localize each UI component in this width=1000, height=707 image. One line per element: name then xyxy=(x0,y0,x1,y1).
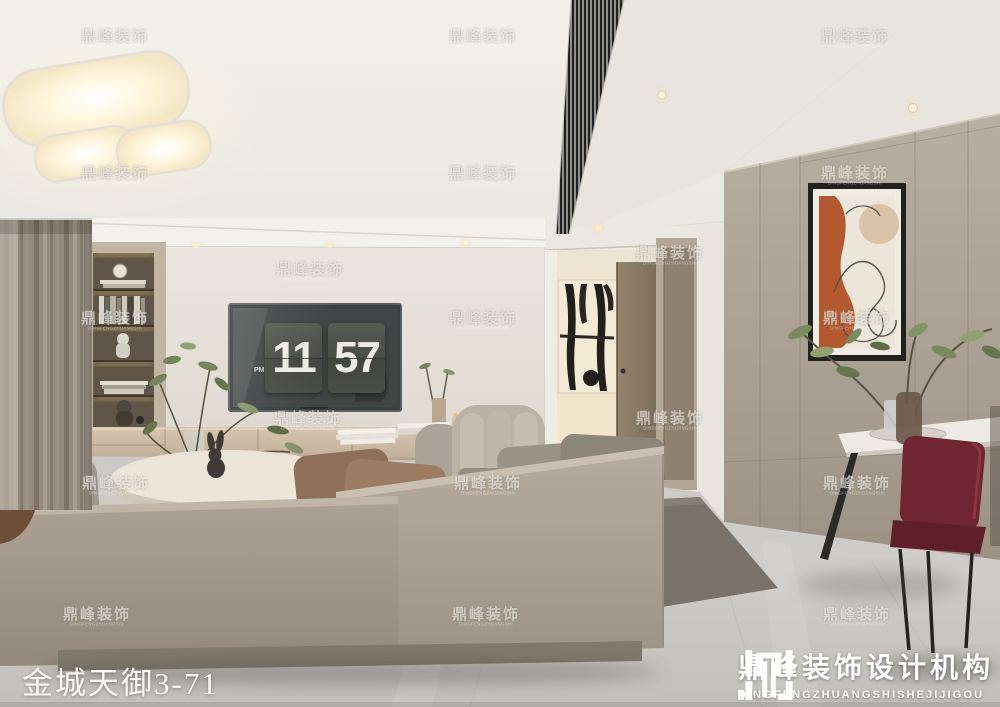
door-handle xyxy=(621,369,626,374)
flip-clock: PM 11 57 xyxy=(228,303,400,411)
bookshelf-niche xyxy=(82,242,166,436)
brand-logo: 鼎峰装饰设计机构 DINGFENGZHUANGSHISHEJIJIGOU xyxy=(738,646,994,701)
living-room-scene xyxy=(0,0,1000,707)
hallway-artwork xyxy=(558,280,617,393)
corner-wall xyxy=(697,228,724,522)
books xyxy=(99,296,145,324)
astronaut-figurine xyxy=(116,333,130,358)
curtain xyxy=(0,218,92,510)
project-caption: 金城天御3-71 xyxy=(22,658,219,703)
shelf-clock xyxy=(113,264,127,278)
tv-glare xyxy=(228,303,400,411)
brand-logo-mark xyxy=(738,646,800,704)
interior-rendering: PM 11 57 鼎峰装饰DINGFENGZHUANGSHI鼎峰装饰DINGFE… xyxy=(0,0,1000,707)
painting-circle xyxy=(859,204,899,244)
